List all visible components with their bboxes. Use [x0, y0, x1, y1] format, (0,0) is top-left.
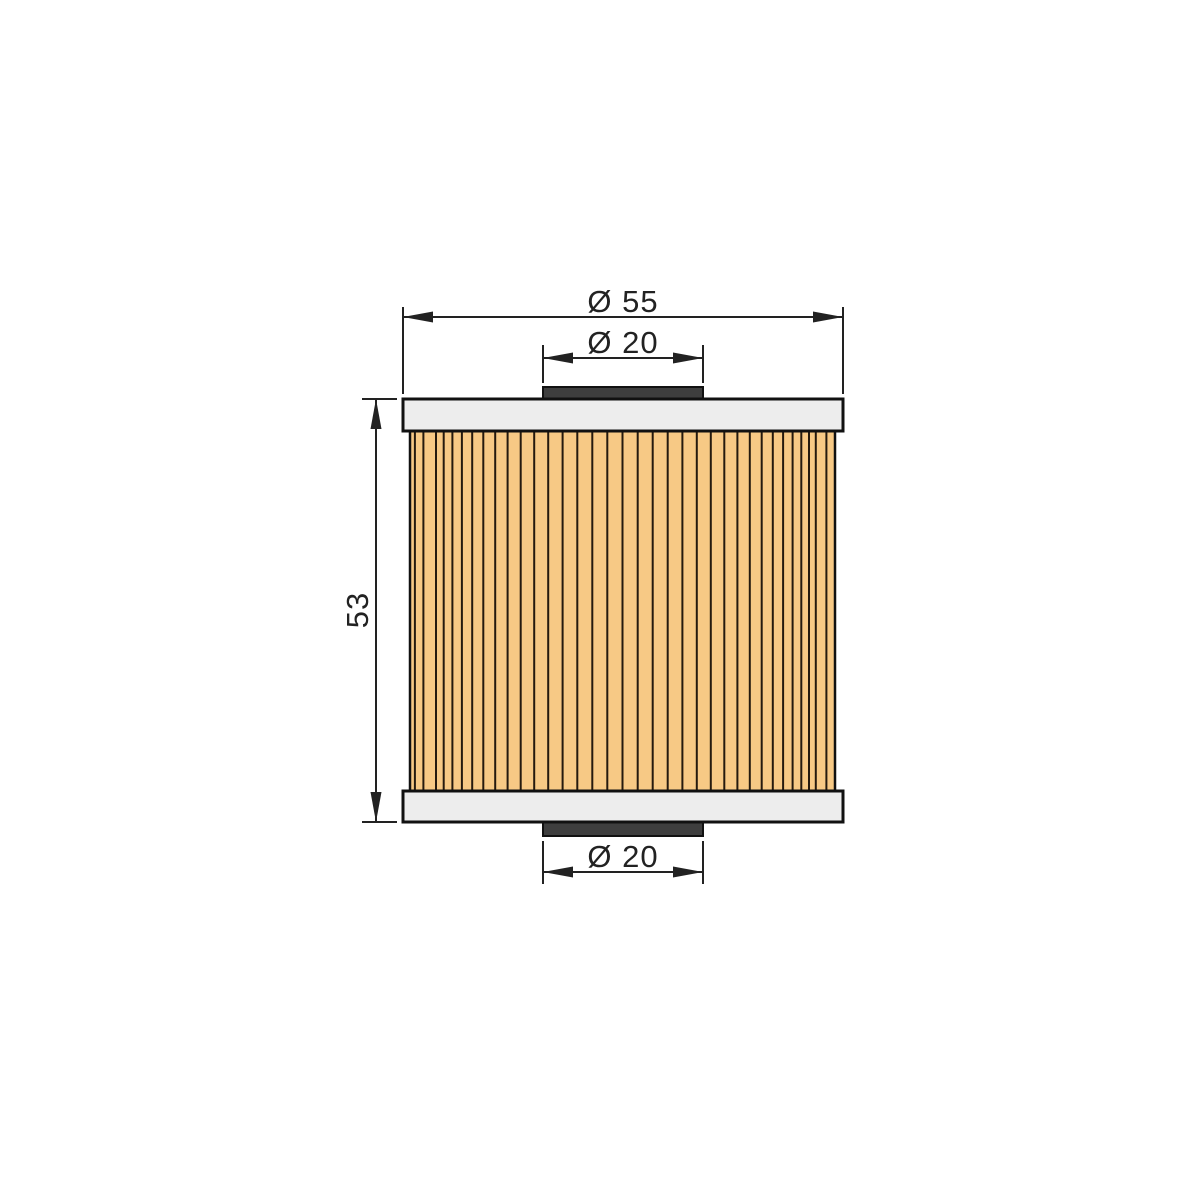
- arrowhead-left: [543, 353, 573, 364]
- filter-body: [403, 387, 843, 836]
- arrowhead-right: [673, 353, 703, 364]
- arrowhead-top: [371, 399, 382, 429]
- arrowhead-left: [543, 867, 573, 878]
- inner-diameter-bottom-label: Ø 20: [587, 839, 658, 874]
- height-label: 53: [340, 592, 375, 628]
- arrowhead-right: [673, 867, 703, 878]
- top-end-cap: [403, 399, 843, 431]
- arrowhead-left: [403, 312, 433, 323]
- dim-inner-diameter-bottom: Ø 20: [543, 839, 703, 884]
- filter-drawing-svg: Ø 55 Ø 20 53 Ø 20: [0, 0, 1200, 1200]
- inner-diameter-top-label: Ø 20: [587, 325, 658, 360]
- dim-height: 53: [340, 399, 397, 822]
- dim-inner-diameter-top: Ø 20: [543, 325, 703, 383]
- arrowhead-right: [813, 312, 843, 323]
- arrowhead-bottom: [371, 792, 382, 822]
- technical-drawing: Ø 55 Ø 20 53 Ø 20: [0, 0, 1200, 1200]
- bottom-end-cap: [403, 791, 843, 822]
- outer-diameter-label: Ø 55: [587, 284, 658, 319]
